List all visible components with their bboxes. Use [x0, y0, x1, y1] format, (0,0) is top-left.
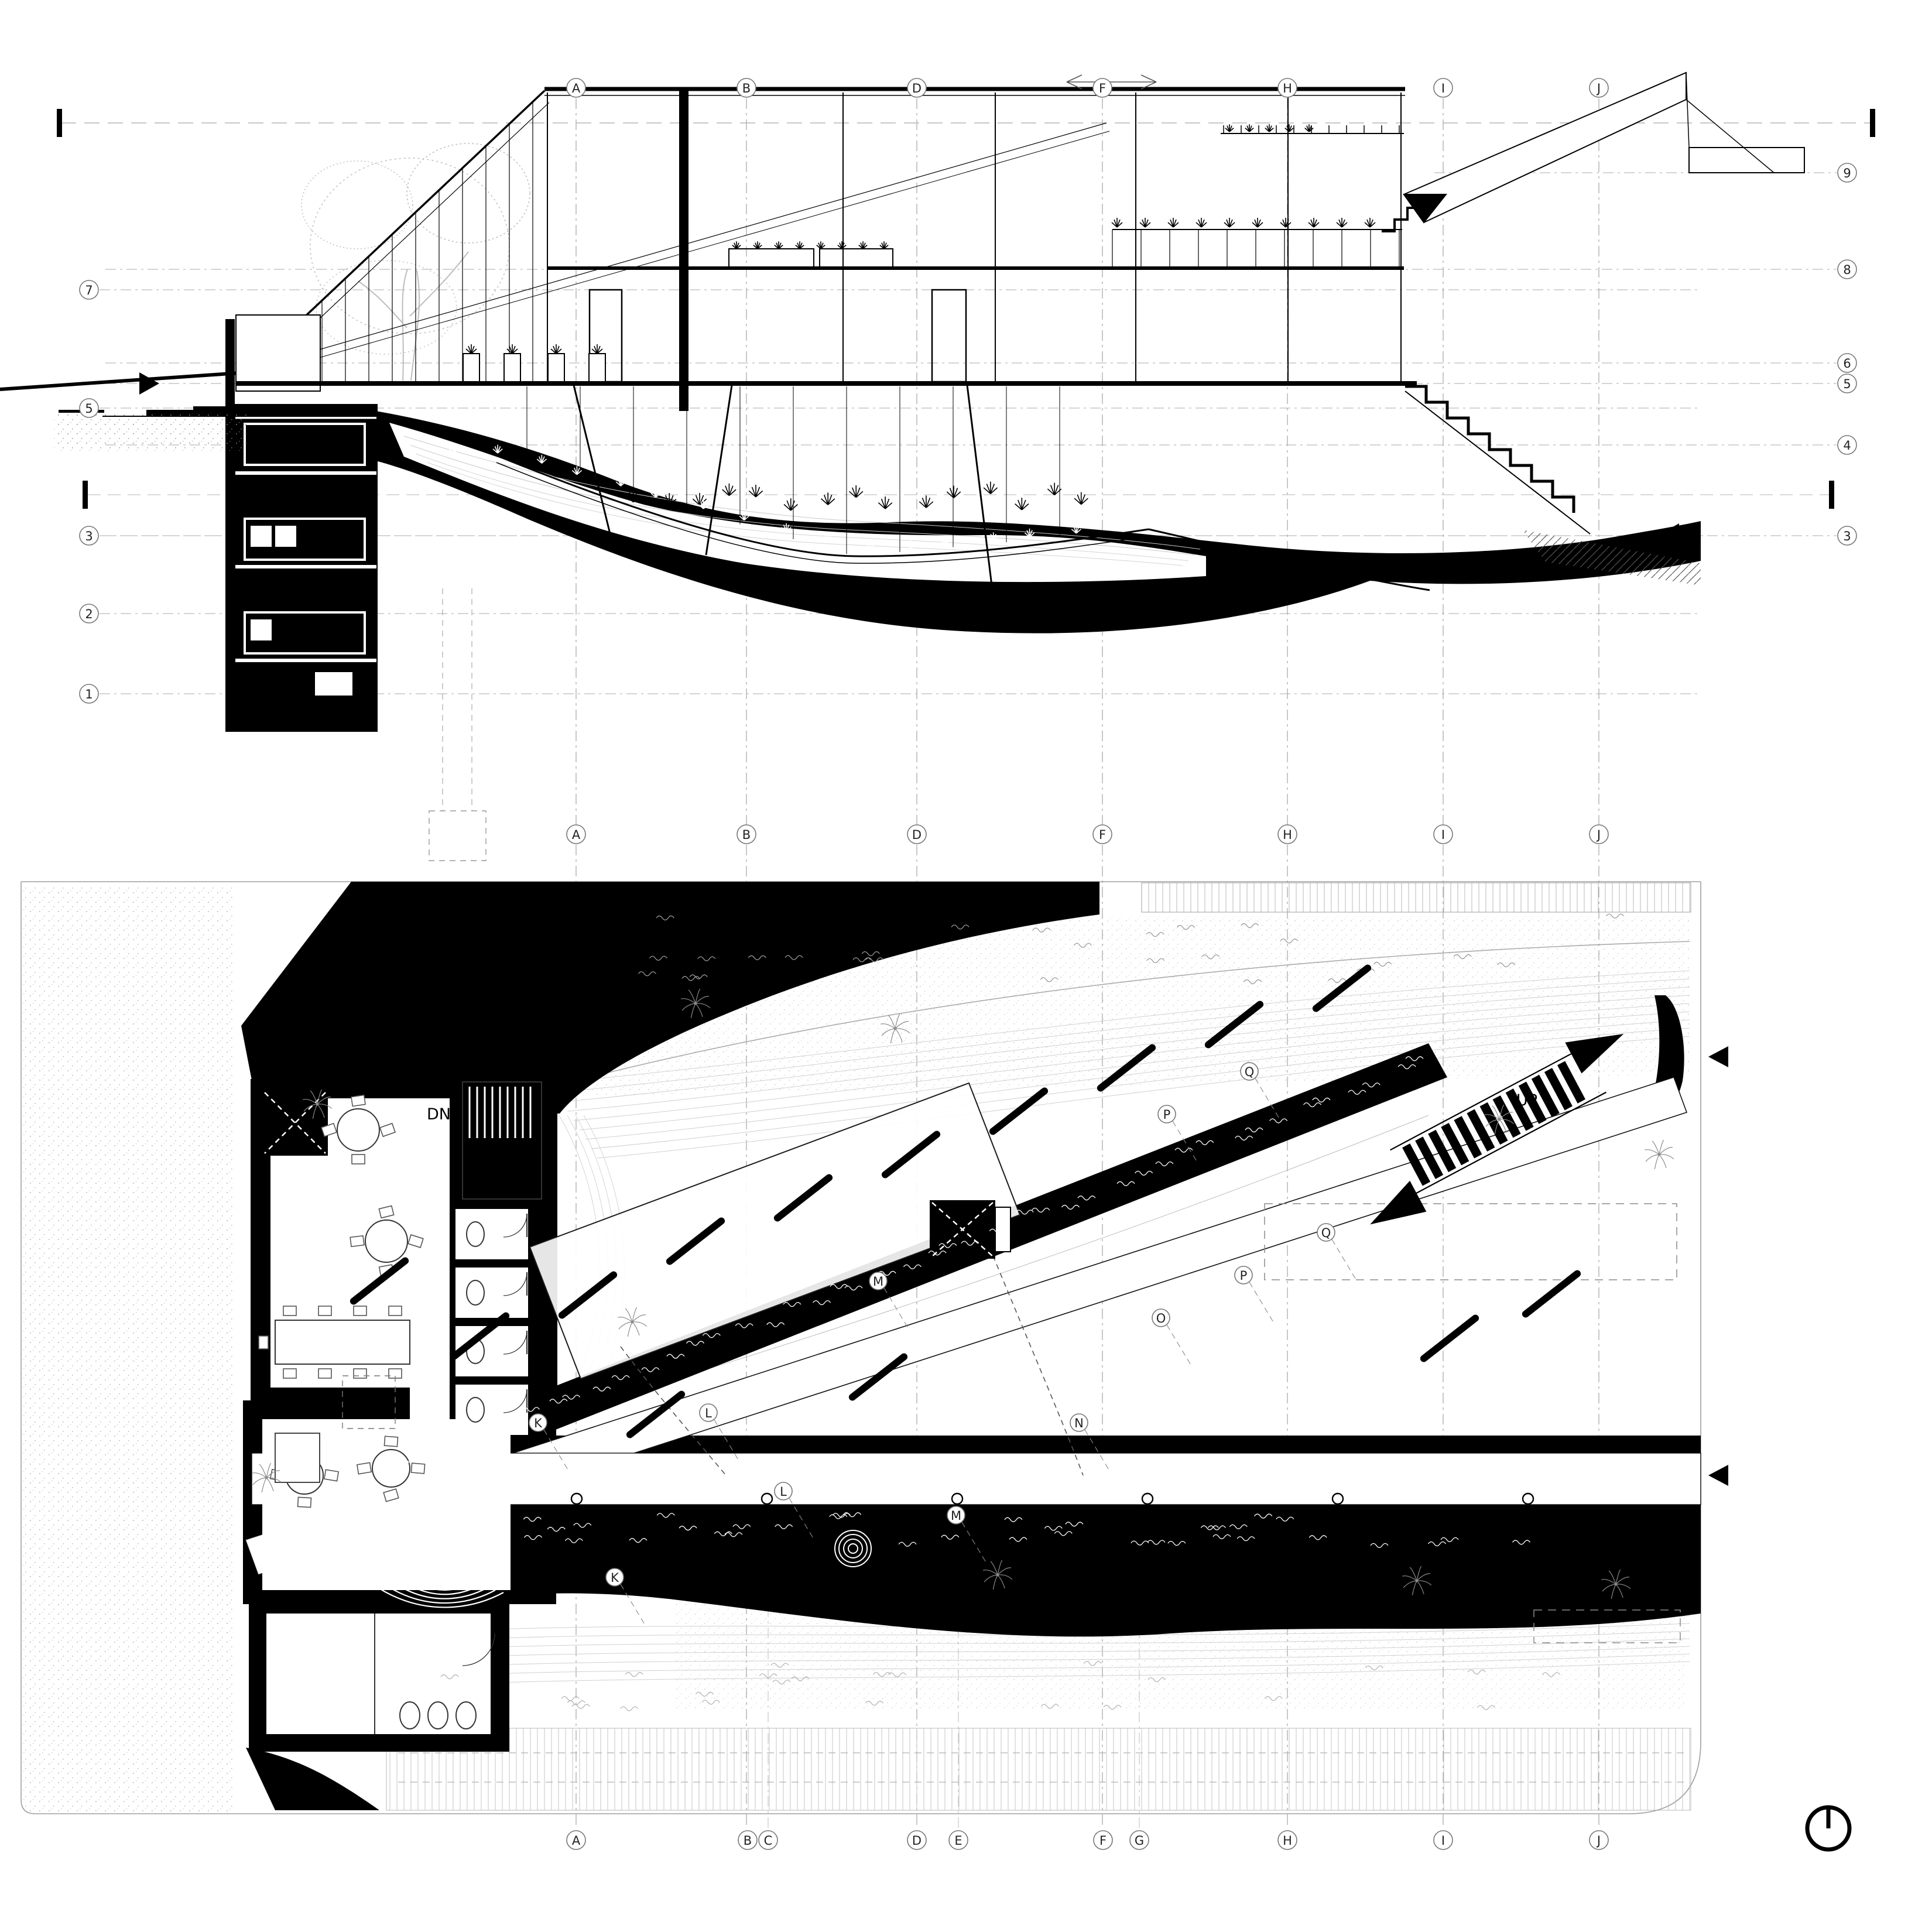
veg-scribble — [561, 1697, 579, 1701]
chair — [259, 1336, 268, 1349]
plan-grid-bubble-bottom-J: J — [1590, 1831, 1608, 1849]
tension-cable — [248, 123, 1107, 370]
section-level-bubble-left-7: 7 — [80, 280, 98, 299]
chair — [350, 1236, 364, 1247]
bench — [988, 1086, 1049, 1136]
plan-grid-bubble-bottom-E: E — [949, 1831, 968, 1849]
plant-tuft — [1196, 218, 1207, 227]
chair — [283, 1369, 296, 1378]
long-table — [275, 1320, 410, 1364]
plan-grid-bubble-bottom-H-label: H — [1283, 1834, 1292, 1848]
plan-keynote-bubble-Q: Q — [1241, 1063, 1258, 1080]
plan-keynote-bubble-O: O — [1152, 1309, 1170, 1327]
column-circle — [952, 1493, 962, 1504]
plan-grid-bubble-mid-H-label: H — [1283, 828, 1292, 842]
section-level-bubble-right-3: 3 — [1838, 526, 1856, 545]
section-level-bubble-right-8: 8 — [1838, 260, 1856, 279]
plan-grid-bubble-bottom-A-label: A — [572, 1834, 581, 1848]
palm-center — [894, 1027, 897, 1030]
plan-keynote-bubble-P: P — [1235, 1266, 1252, 1284]
plan-keynote-bubble-K-label: K — [534, 1416, 543, 1430]
palm-center — [1498, 1118, 1501, 1121]
plant-tuft — [1252, 218, 1263, 227]
toilet — [467, 1397, 484, 1422]
plan-grid-bubble-bottom-I-label: I — [1441, 1834, 1445, 1848]
chair — [352, 1155, 365, 1164]
pedestal — [589, 354, 605, 382]
plan-keynote-bubble-L: L — [775, 1482, 792, 1500]
chair — [324, 1469, 338, 1481]
cut-earth-stipple — [54, 413, 247, 451]
section-level-bubble-left-7-label: 7 — [85, 283, 93, 297]
section-level-bubble-right-6: 6 — [1838, 354, 1856, 372]
garden-stair — [1405, 386, 1574, 513]
plan-keynote-bubble-P-label: P — [1163, 1108, 1171, 1122]
plan-grid-bubble-bottom-F: F — [1094, 1831, 1112, 1849]
plant-tuft — [784, 498, 797, 511]
stair-down — [463, 1082, 542, 1199]
door — [932, 290, 966, 382]
bench — [1520, 1269, 1582, 1319]
plant-tuft — [1140, 218, 1150, 227]
section-grid-bubble-A: A — [567, 78, 585, 97]
plan-keynote-bubble-K-label: K — [611, 1571, 619, 1585]
parking-hatch — [386, 1728, 1691, 1810]
stair-down-label: DN — [427, 1105, 451, 1123]
section-arrow-right — [139, 372, 159, 395]
chair — [411, 1463, 424, 1474]
palm-tree — [1645, 1140, 1674, 1169]
plant-tuft — [1305, 124, 1313, 132]
plan-grid-bubble-mid-J: J — [1590, 825, 1608, 844]
plan-grid-bubble-bottom-I: I — [1434, 1831, 1453, 1849]
plan-keynote-bubble-M: M — [869, 1272, 887, 1290]
plan-keynote-bubble-N-label: N — [1074, 1416, 1084, 1430]
plant-tuft — [1280, 218, 1291, 227]
chair — [318, 1369, 331, 1378]
plan-keynote-bubble-N: N — [1070, 1414, 1088, 1431]
toilet — [467, 1280, 484, 1305]
plan-grid-bubble-mid-I-label: I — [1441, 828, 1445, 842]
hall-core — [930, 1200, 1010, 1259]
plan-keynote-bubble-M: M — [947, 1506, 965, 1524]
chair — [283, 1306, 296, 1316]
round-table — [337, 1109, 379, 1151]
column-circle — [571, 1493, 582, 1504]
plant-tuft — [1112, 218, 1122, 227]
plan-keynote-bubble-Q-label: Q — [1245, 1065, 1255, 1079]
plant-tuft — [732, 241, 741, 249]
plan-grid-bubble-bottom-E-label: E — [954, 1834, 962, 1848]
toilet — [467, 1222, 484, 1246]
palm-center — [1658, 1153, 1661, 1156]
plan-keynote-bubble-Q-label: Q — [1321, 1226, 1331, 1240]
ground-mass — [369, 410, 1701, 633]
plan-grid-bubble-mid-A: A — [567, 825, 585, 844]
plan-grid-bubble-mid-F: F — [1093, 825, 1112, 844]
plant-tuft — [1104, 521, 1113, 529]
plan-grid-bubble-mid-D: D — [907, 825, 926, 844]
plan-grid-bubble-bottom-D: D — [907, 1831, 926, 1849]
drawing-canvas: ABDFHIJ75321986543ABDFHIJABCDEFGHIJKKLLM… — [0, 0, 1932, 1932]
plan-keynote-bubble-L: L — [700, 1404, 717, 1421]
round-table — [372, 1450, 410, 1487]
plan-section-arrow — [1708, 1046, 1728, 1067]
veg-scribble — [621, 1707, 638, 1711]
section-grid-bubble-B-label: B — [742, 81, 751, 95]
section-grid-bubble-I: I — [1434, 78, 1453, 97]
section-grid-bubble-D-label: D — [912, 81, 922, 95]
section-level-bubble-right-5-label: 5 — [1843, 377, 1851, 391]
plan-grid-bubble-bottom-B-label: B — [744, 1834, 752, 1848]
section-level-bubble-right-5: 5 — [1838, 374, 1856, 393]
chair — [351, 1095, 365, 1106]
chair — [354, 1369, 366, 1378]
plant-tuft — [947, 486, 960, 498]
palm-center — [1416, 1580, 1419, 1582]
keynote-leader-Q — [1332, 1239, 1356, 1280]
plant-tuft — [984, 482, 997, 494]
plant-tuft — [817, 241, 825, 249]
round-table — [365, 1220, 407, 1262]
planter — [729, 249, 814, 268]
palm-center — [316, 1103, 319, 1106]
section-level-bubble-left-5: 5 — [80, 399, 98, 417]
chair — [354, 1306, 366, 1316]
plan-grid-bubble-bottom-G-label: G — [1135, 1834, 1144, 1848]
plant-tuft — [775, 241, 783, 249]
plan-grid-bubble-bottom-H: H — [1278, 1831, 1297, 1849]
section-grid-bubble-F: F — [1093, 78, 1112, 97]
section-grid-bubble-J-label: J — [1596, 81, 1601, 95]
plan-grid-bubble-mid-F-label: F — [1099, 828, 1106, 842]
chair — [318, 1306, 331, 1316]
column-circle — [1332, 1493, 1343, 1504]
plan-grid-bubble-mid-I: I — [1434, 825, 1453, 844]
chair — [357, 1462, 371, 1474]
plant-tuft — [878, 496, 892, 509]
plant-tuft — [1168, 218, 1179, 227]
plant-tuft — [753, 241, 762, 249]
plant-tuft — [880, 241, 888, 249]
planter — [820, 249, 893, 268]
plant-tuft — [1337, 218, 1347, 227]
site-plan — [21, 845, 1849, 1849]
plant-tuft — [1224, 218, 1235, 227]
plant-tuft — [722, 484, 736, 496]
chair — [389, 1306, 402, 1316]
section-level-bubble-left-3: 3 — [80, 526, 98, 545]
plant-tuft — [1265, 124, 1273, 132]
pedestal — [463, 354, 479, 382]
drawing-sheet: ABDFHIJ75321986543ABDFHIJABCDEFGHIJKKLLM… — [0, 0, 1932, 1932]
section-level-bubble-right-4-label: 4 — [1843, 439, 1851, 453]
plan-grid-bubble-bottom-D-label: D — [912, 1834, 922, 1848]
section-grid-bubble-I-label: I — [1441, 81, 1445, 95]
section-level-bubble-left-2-label: 2 — [85, 607, 93, 621]
beach-stipple — [23, 884, 234, 1811]
section-level-bubble-right-4: 4 — [1838, 436, 1856, 454]
plant-tuft — [849, 485, 863, 498]
plant-tuft — [796, 241, 804, 249]
building-section — [0, 73, 1875, 861]
column-circle — [1142, 1493, 1153, 1504]
plan-keynote-bubble-M-label: M — [951, 1509, 961, 1523]
keynote-leader-P — [1249, 1282, 1274, 1323]
section-grid-bubble-J: J — [1590, 78, 1608, 97]
plant-tuft — [1015, 498, 1029, 510]
section-grid-bubble-H: H — [1278, 78, 1297, 97]
section-level-bubble-left-1-label: 1 — [85, 687, 93, 701]
palm-center — [631, 1321, 634, 1324]
plan-grid-bubble-mid-A-label: A — [572, 828, 581, 842]
plan-keynote-bubble-P-label: P — [1240, 1269, 1248, 1283]
plan-keynote-bubble-O-label: O — [1156, 1311, 1166, 1325]
plant-tuft — [838, 241, 846, 249]
chair — [298, 1497, 311, 1507]
column-circle — [762, 1493, 772, 1504]
plan-grid-bubble-mid-B-label: B — [742, 828, 751, 842]
column-circle — [1523, 1493, 1533, 1504]
plan-keynote-bubble-L-label: L — [705, 1406, 712, 1420]
section-level-bubble-right-9: 9 — [1838, 163, 1856, 182]
section-level-bubble-left-2: 2 — [80, 604, 98, 623]
veg-scribble — [572, 1704, 590, 1708]
plant-tuft — [1153, 518, 1162, 526]
bench — [1419, 1313, 1480, 1364]
plan-grid-bubble-bottom-F-label: F — [1099, 1834, 1107, 1848]
palm-frond — [1645, 1150, 1659, 1155]
plant-tuft — [1245, 124, 1253, 132]
plant-tuft — [1285, 124, 1293, 132]
palm-center — [265, 1477, 268, 1479]
plan-grid-bubble-mid-J-label: J — [1596, 828, 1601, 842]
palm-center — [996, 1574, 999, 1577]
plan-keynote-bubble-L-label: L — [780, 1485, 787, 1499]
section-level-bubble-left-5-label: 5 — [85, 402, 93, 416]
section-grid-bubble-H-label: H — [1283, 81, 1292, 95]
plan-grid-bubble-bottom-C: C — [759, 1831, 777, 1849]
plant-tuft — [592, 344, 602, 354]
section-grid-bubble-B: B — [737, 78, 756, 97]
pedestal — [504, 354, 520, 382]
boardwalk-hatch — [1142, 883, 1691, 912]
pedestal — [548, 354, 564, 382]
plan-keynote-bubble-M-label: M — [873, 1275, 883, 1289]
plant-tuft — [1308, 218, 1319, 227]
plan-grid-bubble-mid-B: B — [737, 825, 756, 844]
section-level-bubble-right-6-label: 6 — [1843, 357, 1851, 371]
plan-keynote-bubble-K: K — [606, 1568, 624, 1586]
elevator-shaft — [679, 89, 688, 411]
plan-grid-bubble-bottom-J-label: J — [1596, 1834, 1601, 1848]
plan-grid-bubble-bottom-A: A — [567, 1831, 585, 1849]
plant-tuft — [466, 344, 477, 354]
north-arrow — [1807, 1807, 1849, 1849]
plant-tuft — [1074, 492, 1088, 505]
plan-keynote-bubble-K: K — [529, 1414, 547, 1431]
chair — [384, 1436, 398, 1447]
plan-grid-bubble-mid-H: H — [1278, 825, 1297, 844]
plant-tuft — [859, 241, 867, 249]
palm-center — [694, 1002, 697, 1005]
plant-tuft — [749, 485, 762, 497]
plan-keynote-bubble-Q: Q — [1317, 1224, 1335, 1241]
section-level-bubble-right-3-label: 3 — [1843, 529, 1851, 543]
keynote-leader-O — [1167, 1325, 1191, 1366]
palm-center — [1615, 1583, 1618, 1586]
section-level-bubble-right-8-label: 8 — [1843, 263, 1851, 277]
palm-frond — [1646, 1155, 1659, 1162]
plant-tuft — [1365, 218, 1375, 227]
plan-section-arrow — [1708, 1465, 1728, 1486]
section-grid-bubble-F-label: F — [1099, 81, 1106, 95]
palm-frond — [1659, 1155, 1666, 1168]
section-level-bubble-left-3-label: 3 — [85, 529, 93, 543]
section-level-bubble-right-9-label: 9 — [1843, 166, 1851, 180]
plan-keynote-bubble-P: P — [1158, 1105, 1176, 1123]
plan-grid-bubble-bottom-G: G — [1130, 1831, 1149, 1849]
plan-grid-bubble-bottom-B: B — [738, 1831, 757, 1849]
plan-grid-bubble-mid-D-label: D — [912, 828, 922, 842]
section-grid-bubble-A-label: A — [572, 81, 581, 95]
plant-tuft — [507, 344, 518, 354]
section-grid-bubble-D: D — [907, 78, 926, 97]
plant-tuft — [1047, 483, 1061, 495]
palm-frond — [1659, 1147, 1673, 1155]
plant-tuft — [1225, 124, 1234, 132]
plan-grid-bubble-bottom-C-label: C — [764, 1834, 773, 1848]
stair-up-label: UP — [1516, 1091, 1537, 1109]
palm-frond — [1654, 1155, 1659, 1169]
entry-wall — [236, 315, 320, 391]
section-level-bubble-left-1: 1 — [80, 684, 98, 703]
veg-scribble — [625, 1673, 643, 1677]
plant-tuft — [919, 495, 933, 508]
plant-tuft — [551, 344, 561, 354]
